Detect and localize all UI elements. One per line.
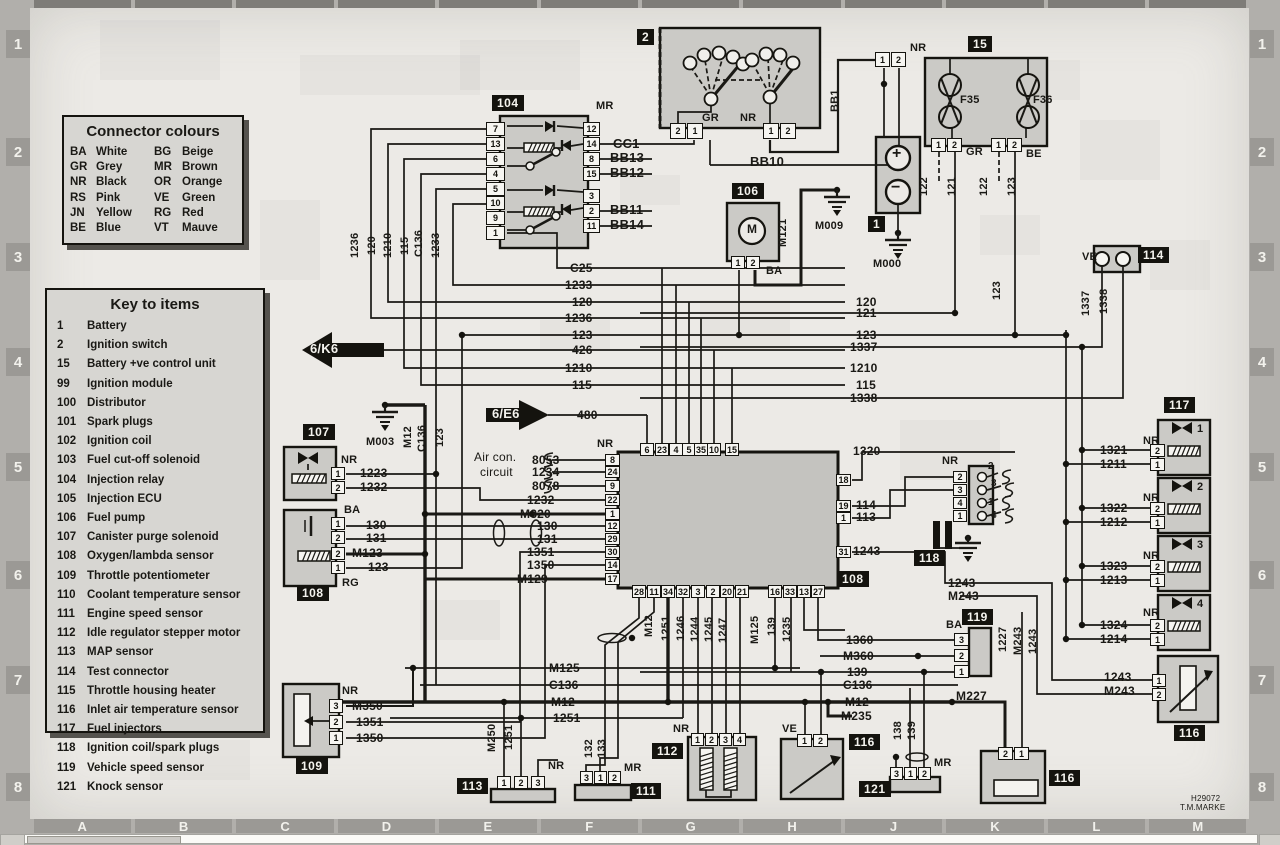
- pin-15: 15: [725, 443, 739, 456]
- wire-label-1251: 1251: [503, 725, 515, 750]
- pin-11: 11: [647, 585, 661, 598]
- legend-colors-table: BAWhiteBGBeigeGRGreyMRBrownNRBlackOROran…: [64, 144, 242, 236]
- wire-label-1243: 1243: [1027, 629, 1039, 654]
- wire-label-C136: C136: [549, 679, 579, 691]
- key-item-number: 108: [57, 547, 87, 566]
- key-item-number: 121: [57, 778, 87, 797]
- wire-label-3: 3: [1197, 539, 1203, 551]
- grid-col-top-K: [946, 0, 1043, 8]
- wire-label-115: 115: [572, 379, 592, 391]
- grid-col-top-L: [1048, 0, 1145, 8]
- wire-label-1351: 1351: [356, 716, 384, 728]
- key-item-label: Test connector: [87, 663, 169, 682]
- wire-label-M243: M243: [948, 590, 979, 602]
- wire-label-1214: 1214: [1100, 633, 1128, 645]
- wire-label-3: 3: [991, 478, 997, 490]
- key-item-label: Engine speed sensor: [87, 605, 203, 624]
- wire-label-2: 2: [988, 461, 994, 473]
- pin-1: 1: [953, 510, 967, 522]
- wire-label-139: 139: [906, 721, 918, 740]
- wire-label-BB13: BB13: [610, 152, 644, 164]
- wire-label-1337: 1337: [850, 341, 878, 353]
- key-item-119: 119Vehicle speed sensor: [47, 759, 263, 778]
- grid-col-top-J: [845, 0, 942, 8]
- pin-3: 3: [580, 771, 593, 784]
- pin-29: 29: [605, 533, 620, 545]
- wire-label-1338: 1338: [850, 392, 878, 404]
- wire-label-131: 131: [366, 532, 387, 544]
- pin-2: 2: [608, 771, 621, 784]
- wire-label-121: 121: [946, 177, 958, 196]
- wire-label-2: 2: [1197, 481, 1203, 493]
- wire-label-NR: NR: [910, 42, 926, 54]
- key-item-number: 2: [57, 336, 87, 355]
- wire-label-T.M.MARKE: T.M.MARKE: [1180, 802, 1225, 814]
- key-item-number: 119: [57, 759, 87, 778]
- wire-label-M12: M12: [402, 426, 414, 448]
- grid-col-A: A: [34, 819, 131, 833]
- wire-label-8078: 8078: [532, 480, 560, 492]
- wire-label-113: 113: [856, 511, 876, 523]
- pin-4: 4: [953, 497, 967, 509]
- grid-row-7-left: 7: [6, 666, 30, 694]
- key-item-113: 113MAP sensor: [47, 643, 263, 662]
- wire-label-circuit: circuit: [480, 466, 513, 478]
- pin-3: 3: [531, 776, 545, 789]
- key-item-108: 108Oxygen/lambda sensor: [47, 547, 263, 566]
- component-tag-107: 107: [303, 424, 335, 440]
- pin-1: 1: [1150, 516, 1165, 529]
- scrollbar-left-corner: [0, 834, 25, 845]
- component-tag-104: 104: [492, 95, 524, 111]
- wire-label-1236: 1236: [349, 233, 361, 258]
- key-item-number: 116: [57, 701, 87, 720]
- pin-33: 33: [783, 585, 797, 598]
- wire-label-123: 123: [1006, 177, 1018, 196]
- colour-name: Brown: [182, 161, 238, 173]
- connector-colours-legend: Connector colours BAWhiteBGBeigeGRGreyMR…: [62, 115, 244, 245]
- grid-col-M: M: [1149, 819, 1246, 833]
- key-item-number: 109: [57, 567, 87, 586]
- legend-items-title: Key to items: [51, 296, 259, 313]
- pin-2: 2: [514, 776, 528, 789]
- key-item-105: 105Injection ECU: [47, 490, 263, 509]
- colour-code: RS: [70, 192, 96, 204]
- wire-label-NR: NR: [673, 723, 689, 735]
- wire-label-−: −: [891, 182, 901, 194]
- pin-4: 4: [669, 443, 683, 456]
- pin-2: 2: [1152, 688, 1166, 701]
- pin-34: 34: [661, 585, 675, 598]
- pin-1: 1: [1152, 674, 1166, 687]
- pin-1: 1: [991, 138, 1006, 152]
- wire-label-4: 4: [1197, 598, 1203, 610]
- wire-label-123: 123: [991, 281, 1003, 300]
- colour-code: RG: [154, 207, 182, 219]
- key-item-label: Battery +ve control unit: [87, 355, 216, 374]
- legend-items-list: 1Battery2Ignition switch15Battery +ve co…: [47, 317, 263, 797]
- component-tag-114: 114: [1138, 247, 1169, 263]
- wire-label-1320: 1320: [853, 445, 881, 457]
- wire-label-1210: 1210: [850, 362, 878, 374]
- key-item-number: 110: [57, 586, 87, 605]
- wire-label-1211: 1211: [1100, 458, 1127, 470]
- component-tag-113: 113: [457, 778, 488, 794]
- key-item-number: 114: [57, 663, 87, 682]
- component-tag-116: 116: [849, 734, 880, 750]
- pin-1: 1: [486, 226, 505, 240]
- pin-2: 2: [891, 52, 906, 67]
- wire-label-1247: 1247: [717, 618, 729, 643]
- pin-1: 1: [1150, 574, 1165, 587]
- key-item-number: 103: [57, 451, 87, 470]
- colour-code: VT: [154, 222, 182, 234]
- pin-2: 2: [918, 767, 931, 780]
- key-item-number: 117: [57, 720, 87, 739]
- pin-19: 19: [836, 500, 851, 512]
- key-item-number: 105: [57, 490, 87, 509]
- key-item-label: Battery: [87, 317, 127, 336]
- key-item-107: 107Canister purge solenoid: [47, 528, 263, 547]
- wire-label-1210: 1210: [565, 362, 593, 374]
- wire-label-NR: NR: [740, 112, 756, 124]
- component-tag-117: 117: [1164, 397, 1195, 413]
- wire-label-426: 426: [572, 344, 593, 356]
- pin-3: 3: [719, 733, 732, 746]
- component-tag-106: 106: [732, 183, 764, 199]
- pin-23: 23: [655, 443, 669, 456]
- wire-label-4: 4: [991, 510, 997, 522]
- grid-col-C: C: [236, 819, 333, 833]
- component-tag-108: 108: [837, 571, 869, 587]
- legend-colors-title: Connector colours: [68, 123, 238, 140]
- component-tag-116: 116: [1049, 770, 1080, 786]
- wire-label-1234: 1234: [532, 466, 560, 478]
- key-item-104: 104Injection relay: [47, 471, 263, 490]
- wire-label-1233: 1233: [430, 233, 442, 258]
- pin-1: 1: [331, 517, 345, 530]
- pin-2: 2: [813, 734, 828, 747]
- colour-code: JN: [70, 207, 96, 219]
- wire-label-BA: BA: [766, 265, 782, 277]
- wire-label-BA: BA: [344, 504, 360, 516]
- wire-label-VE: VE: [782, 723, 797, 735]
- key-item-label: Fuel cut-off solenoid: [87, 451, 200, 470]
- wire-label-M121: M121: [777, 219, 789, 247]
- colour-name: Yellow: [96, 207, 154, 219]
- pin-2: 2: [1150, 444, 1165, 457]
- pin-1: 1: [875, 52, 890, 67]
- component-tag-108: 108: [297, 585, 329, 601]
- key-item-100: 100Distributor: [47, 394, 263, 413]
- pin-30: 30: [605, 546, 620, 558]
- key-item-101: 101Spark plugs: [47, 413, 263, 432]
- wire-label-BB12: BB12: [610, 167, 644, 179]
- pin-9: 9: [605, 480, 620, 492]
- colour-name: Black: [96, 176, 154, 188]
- pin-2: 2: [670, 123, 686, 139]
- wire-label-1324: 1324: [1100, 619, 1128, 631]
- key-item-label: Idle regulator stepper motor: [87, 624, 240, 643]
- scrollbar-right-corner: [1259, 834, 1280, 845]
- wire-label-BB10: BB10: [750, 156, 784, 168]
- key-item-number: 106: [57, 509, 87, 528]
- colour-name: Red: [182, 207, 238, 219]
- pin-2: 2: [331, 481, 345, 494]
- key-item-116: 116Inlet air temperature sensor: [47, 701, 263, 720]
- pin-24: 24: [605, 466, 620, 478]
- key-item-label: Ignition coil/spark plugs: [87, 739, 219, 758]
- wire-label-NR: NR: [597, 438, 613, 450]
- pin-1: 1: [731, 256, 745, 269]
- wire-label-131: 131: [537, 533, 558, 545]
- horizontal-scrollbar[interactable]: [24, 834, 1258, 844]
- pin-18: 18: [836, 474, 851, 486]
- wire-label-M125: M125: [749, 616, 761, 644]
- pin-10: 10: [486, 196, 505, 210]
- colour-name: Green: [182, 192, 238, 204]
- grid-col-H: H: [743, 819, 840, 833]
- grid-row-1-right: 1: [1250, 30, 1274, 58]
- grid-row-4-left: 4: [6, 348, 30, 376]
- wire-label-C136: C136: [413, 230, 425, 257]
- key-item-number: 118: [57, 739, 87, 758]
- wire-label-1350: 1350: [356, 732, 384, 744]
- pin-35: 35: [694, 443, 708, 456]
- pin-2: 2: [947, 138, 962, 152]
- pin-1: 1: [329, 731, 343, 745]
- key-item-label: Throttle potentiometer: [87, 567, 210, 586]
- key-item-15: 15Battery +ve control unit: [47, 355, 263, 374]
- pin-27: 27: [811, 585, 825, 598]
- wire-label-120: 120: [572, 296, 593, 308]
- grid-col-G: G: [642, 819, 739, 833]
- grid-col-F: F: [541, 819, 638, 833]
- grid-col-K: K: [946, 819, 1043, 833]
- wire-label-1351: 1351: [527, 546, 555, 558]
- wire-label-CC1: CC1: [613, 138, 640, 150]
- key-item-label: Inlet air temperature sensor: [87, 701, 238, 720]
- pin-1: 1: [1150, 458, 1165, 471]
- pin-1: 1: [331, 561, 345, 574]
- wire-label-MR: MR: [596, 100, 614, 112]
- pin-1: 1: [931, 138, 946, 152]
- pin-13: 13: [486, 137, 505, 151]
- wire-label-480: 480: [577, 409, 598, 421]
- pin-1: 1: [954, 665, 969, 678]
- pin-31: 31: [836, 546, 851, 558]
- grid-col-top-A: [34, 0, 131, 8]
- key-item-118: 118Ignition coil/spark plugs: [47, 739, 263, 758]
- diagram-viewer: Connector colours BAWhiteBGBeigeGRGreyMR…: [0, 0, 1280, 845]
- colour-name: Pink: [96, 192, 154, 204]
- key-item-number: 113: [57, 643, 87, 662]
- wire-label-1350: 1350: [527, 559, 555, 571]
- pin-3: 3: [954, 633, 969, 646]
- colour-name: Grey: [96, 161, 154, 173]
- grid-col-top-E: [439, 0, 536, 8]
- key-item-110: 110Coolant temperature sensor: [47, 586, 263, 605]
- component-tag-111: 111: [631, 783, 661, 799]
- wire-label-F36: F36: [1033, 94, 1053, 106]
- colour-name: Orange: [182, 176, 238, 188]
- key-item-number: 101: [57, 413, 87, 432]
- key-item-number: 1: [57, 317, 87, 336]
- grid-row-7-right: 7: [1250, 666, 1274, 694]
- wire-label-1337: 1337: [1080, 291, 1092, 316]
- wire-label-122: 122: [918, 177, 930, 196]
- wire-label-M: M: [747, 223, 757, 235]
- wire-label-120: 120: [366, 236, 378, 255]
- wire-label-1227: 1227: [997, 627, 1009, 652]
- pin-1: 1: [763, 123, 779, 139]
- wire-label-1213: 1213: [1100, 574, 1128, 586]
- key-item-99: 99Ignition module: [47, 375, 263, 394]
- wire-label-M125: M125: [549, 662, 580, 674]
- wire-label-1235: 1235: [781, 617, 793, 642]
- colour-name: White: [96, 146, 154, 158]
- grid-col-E: E: [439, 819, 536, 833]
- wire-label-M250: M250: [486, 724, 498, 752]
- pin-2: 2: [746, 256, 760, 269]
- pin-20: 20: [720, 585, 734, 598]
- scrollbar-thumb[interactable]: [27, 836, 181, 844]
- grid-row-6-left: 6: [6, 561, 30, 589]
- wire-label-GR: GR: [966, 146, 983, 158]
- wire-label-M227: M227: [956, 690, 987, 702]
- wire-label-1322: 1322: [1100, 502, 1128, 514]
- key-item-number: 104: [57, 471, 87, 490]
- wire-label-1251: 1251: [553, 712, 581, 724]
- pin-3: 3: [583, 189, 600, 203]
- wire-label-121: 121: [856, 307, 877, 319]
- wire-label-M009: M009: [815, 220, 843, 232]
- pin-4: 4: [733, 733, 746, 746]
- grid-row-3-right: 3: [1250, 243, 1274, 271]
- wire-label-1244: 1244: [689, 617, 701, 642]
- colour-code: BA: [70, 146, 96, 158]
- key-item-label: Spark plugs: [87, 413, 153, 432]
- wire-label-123: 123: [572, 329, 593, 341]
- grid-col-top-B: [135, 0, 232, 8]
- pin-1: 1: [594, 771, 607, 784]
- wire-label-130: 130: [366, 519, 387, 531]
- wire-label-1223: 1223: [360, 467, 388, 479]
- grid-row-3-left: 3: [6, 243, 30, 271]
- wire-label-M003: M003: [366, 436, 394, 448]
- pin-1: 1: [904, 767, 917, 780]
- grid-row-5-right: 5: [1250, 453, 1274, 481]
- key-item-number: 15: [57, 355, 87, 374]
- colour-code: OR: [154, 176, 182, 188]
- grid-row-2-right: 2: [1250, 138, 1274, 166]
- pin-8: 8: [605, 454, 620, 466]
- wire-label-1323: 1323: [1100, 560, 1128, 572]
- wire-label-M000: M000: [873, 258, 901, 270]
- grid-col-top-C: [236, 0, 333, 8]
- key-item-label: Injection relay: [87, 471, 164, 490]
- wire-label-C25: C25: [570, 262, 593, 274]
- key-item-1: 1Battery: [47, 317, 263, 336]
- wire-label-1251: 1251: [660, 616, 672, 641]
- pin-1: 1: [1150, 633, 1165, 646]
- wire-label-6/E6: 6/E6: [492, 408, 520, 420]
- pin-1: 1: [691, 733, 704, 746]
- wire-label-1243: 1243: [853, 545, 881, 557]
- wire-label-132: 132: [583, 739, 595, 758]
- pin-2: 2: [1150, 560, 1165, 573]
- wire-label-M235: M235: [841, 710, 872, 722]
- colour-code: GR: [70, 161, 96, 173]
- pin-3: 3: [890, 767, 903, 780]
- grid-col-B: B: [135, 819, 232, 833]
- key-item-label: Fuel injectors: [87, 720, 162, 739]
- wire-label-122: 122: [978, 177, 990, 196]
- wire-label-1: 1: [988, 497, 994, 509]
- grid-col-D: D: [338, 819, 435, 833]
- pin-16: 16: [768, 585, 782, 598]
- pin-11: 11: [583, 219, 600, 233]
- wire-label-VE: VE: [1082, 251, 1097, 263]
- pin-2: 2: [329, 715, 343, 729]
- key-item-label: Distributor: [87, 394, 146, 413]
- wire-label-GR: GR: [702, 112, 719, 124]
- wire-label-M350: M350: [352, 700, 383, 712]
- key-item-111: 111Engine speed sensor: [47, 605, 263, 624]
- component-tag-109: 109: [296, 758, 328, 774]
- wire-label-C136: C136: [416, 425, 428, 452]
- pin-28: 28: [632, 585, 646, 598]
- wire-label-+: +: [892, 148, 902, 160]
- component-tag-121: 121: [859, 781, 891, 797]
- pin-12: 12: [605, 520, 620, 532]
- wire-label-1: 1: [1197, 423, 1203, 435]
- wire-label-115: 115: [399, 237, 411, 255]
- grid-col-top-D: [338, 0, 435, 8]
- pin-3: 3: [329, 699, 343, 713]
- pin-2: 2: [1150, 619, 1165, 632]
- wire-label-1360: 1360: [846, 634, 874, 646]
- grid-col-top-G: [642, 0, 739, 8]
- key-to-items-legend: Key to items 1Battery2Ignition switch15B…: [45, 288, 265, 733]
- grid-row-4-right: 4: [1250, 348, 1274, 376]
- component-tag-116: 116: [1174, 725, 1205, 741]
- wire-label-6/K6: 6/K6: [310, 343, 338, 355]
- wire-label-M129: M129: [517, 573, 548, 585]
- wire-label-NR: NR: [548, 760, 564, 772]
- wire-label-BE: BE: [1026, 148, 1042, 160]
- key-item-label: Ignition coil: [87, 432, 152, 451]
- pin-6: 6: [486, 152, 505, 166]
- wire-label-M123: M123: [352, 547, 383, 559]
- wire-label-1236: 1236: [565, 312, 593, 324]
- component-tag-1: 1: [868, 216, 885, 232]
- pin-13: 13: [797, 585, 811, 598]
- wire-label-NR: NR: [942, 455, 958, 467]
- pin-1: 1: [331, 467, 345, 480]
- pin-2: 2: [706, 585, 720, 598]
- pin-2: 2: [705, 733, 718, 746]
- wire-label-Air con.: Air con.: [474, 451, 516, 463]
- colour-name: Beige: [182, 146, 238, 158]
- key-item-112: 112Idle regulator stepper motor: [47, 624, 263, 643]
- pin-2: 2: [998, 747, 1013, 760]
- wire-label-1233: 1233: [565, 279, 593, 291]
- key-item-label: Vehicle speed sensor: [87, 759, 204, 778]
- wire-label-M360: M360: [843, 650, 874, 662]
- pin-12: 12: [583, 122, 600, 136]
- pin-2: 2: [331, 531, 345, 544]
